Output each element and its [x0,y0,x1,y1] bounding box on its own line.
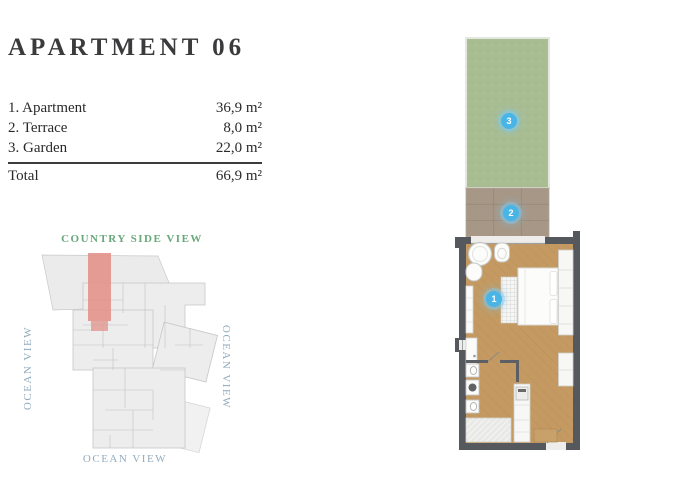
toilet-icon [495,243,510,262]
door-mat [534,429,557,442]
washbasin-icon [466,380,479,395]
unit-highlight [88,253,111,331]
page-title: APARTMENT 06 [8,34,245,62]
brochure-page: APARTMENT 06 1. Apartment 36,9 m² 2. Ter… [0,0,700,500]
area-badge-apartment: 1 [486,291,502,307]
bed [518,268,558,325]
wall-shelf [466,286,473,333]
bidet-icon [466,263,482,281]
area-legend-table: 1. Apartment 36,9 m² 2. Terrace 8,0 m² 3… [8,100,262,188]
bidet2-icon [466,400,479,413]
legend-label: 3. Garden [8,140,67,157]
site-plan-drawing [25,250,240,455]
wardrobe [559,250,574,335]
legend-row-apartment: 1. Apartment 36,9 m² [8,100,262,120]
country-side-view-label: COUNTRY SIDE VIEW [32,233,232,245]
legend-value: 36,9 m² [216,100,262,117]
badge-number: 3 [506,116,511,126]
area-badge-terrace: 2 [503,205,519,221]
legend-total-label: Total [8,168,39,185]
legend-row-terrace: 2. Terrace 8,0 m² [8,120,262,140]
legend-row-garden: 3. Garden 22,0 m² [8,140,262,164]
area-badge-garden: 3 [501,113,517,129]
bathtub-icon [469,243,492,266]
legend-row-total: Total 66,9 m² [8,164,262,188]
left-window-opening [459,340,466,350]
badge-number: 1 [491,294,496,304]
badge-number: 2 [508,208,513,218]
kitchen-counter [514,384,530,442]
legend-total-value: 66,9 m² [216,168,262,185]
building-mass [42,255,217,453]
legend-value: 8,0 m² [223,120,262,137]
kitchen-cabinet [559,353,574,386]
legend-value: 22,0 m² [216,140,262,157]
rug [501,277,517,323]
legend-label: 2. Terrace [8,120,67,137]
wc-icon [466,364,479,377]
shower-area [466,418,511,442]
floor-plan-drawing [430,0,600,470]
legend-label: 1. Apartment [8,100,86,117]
